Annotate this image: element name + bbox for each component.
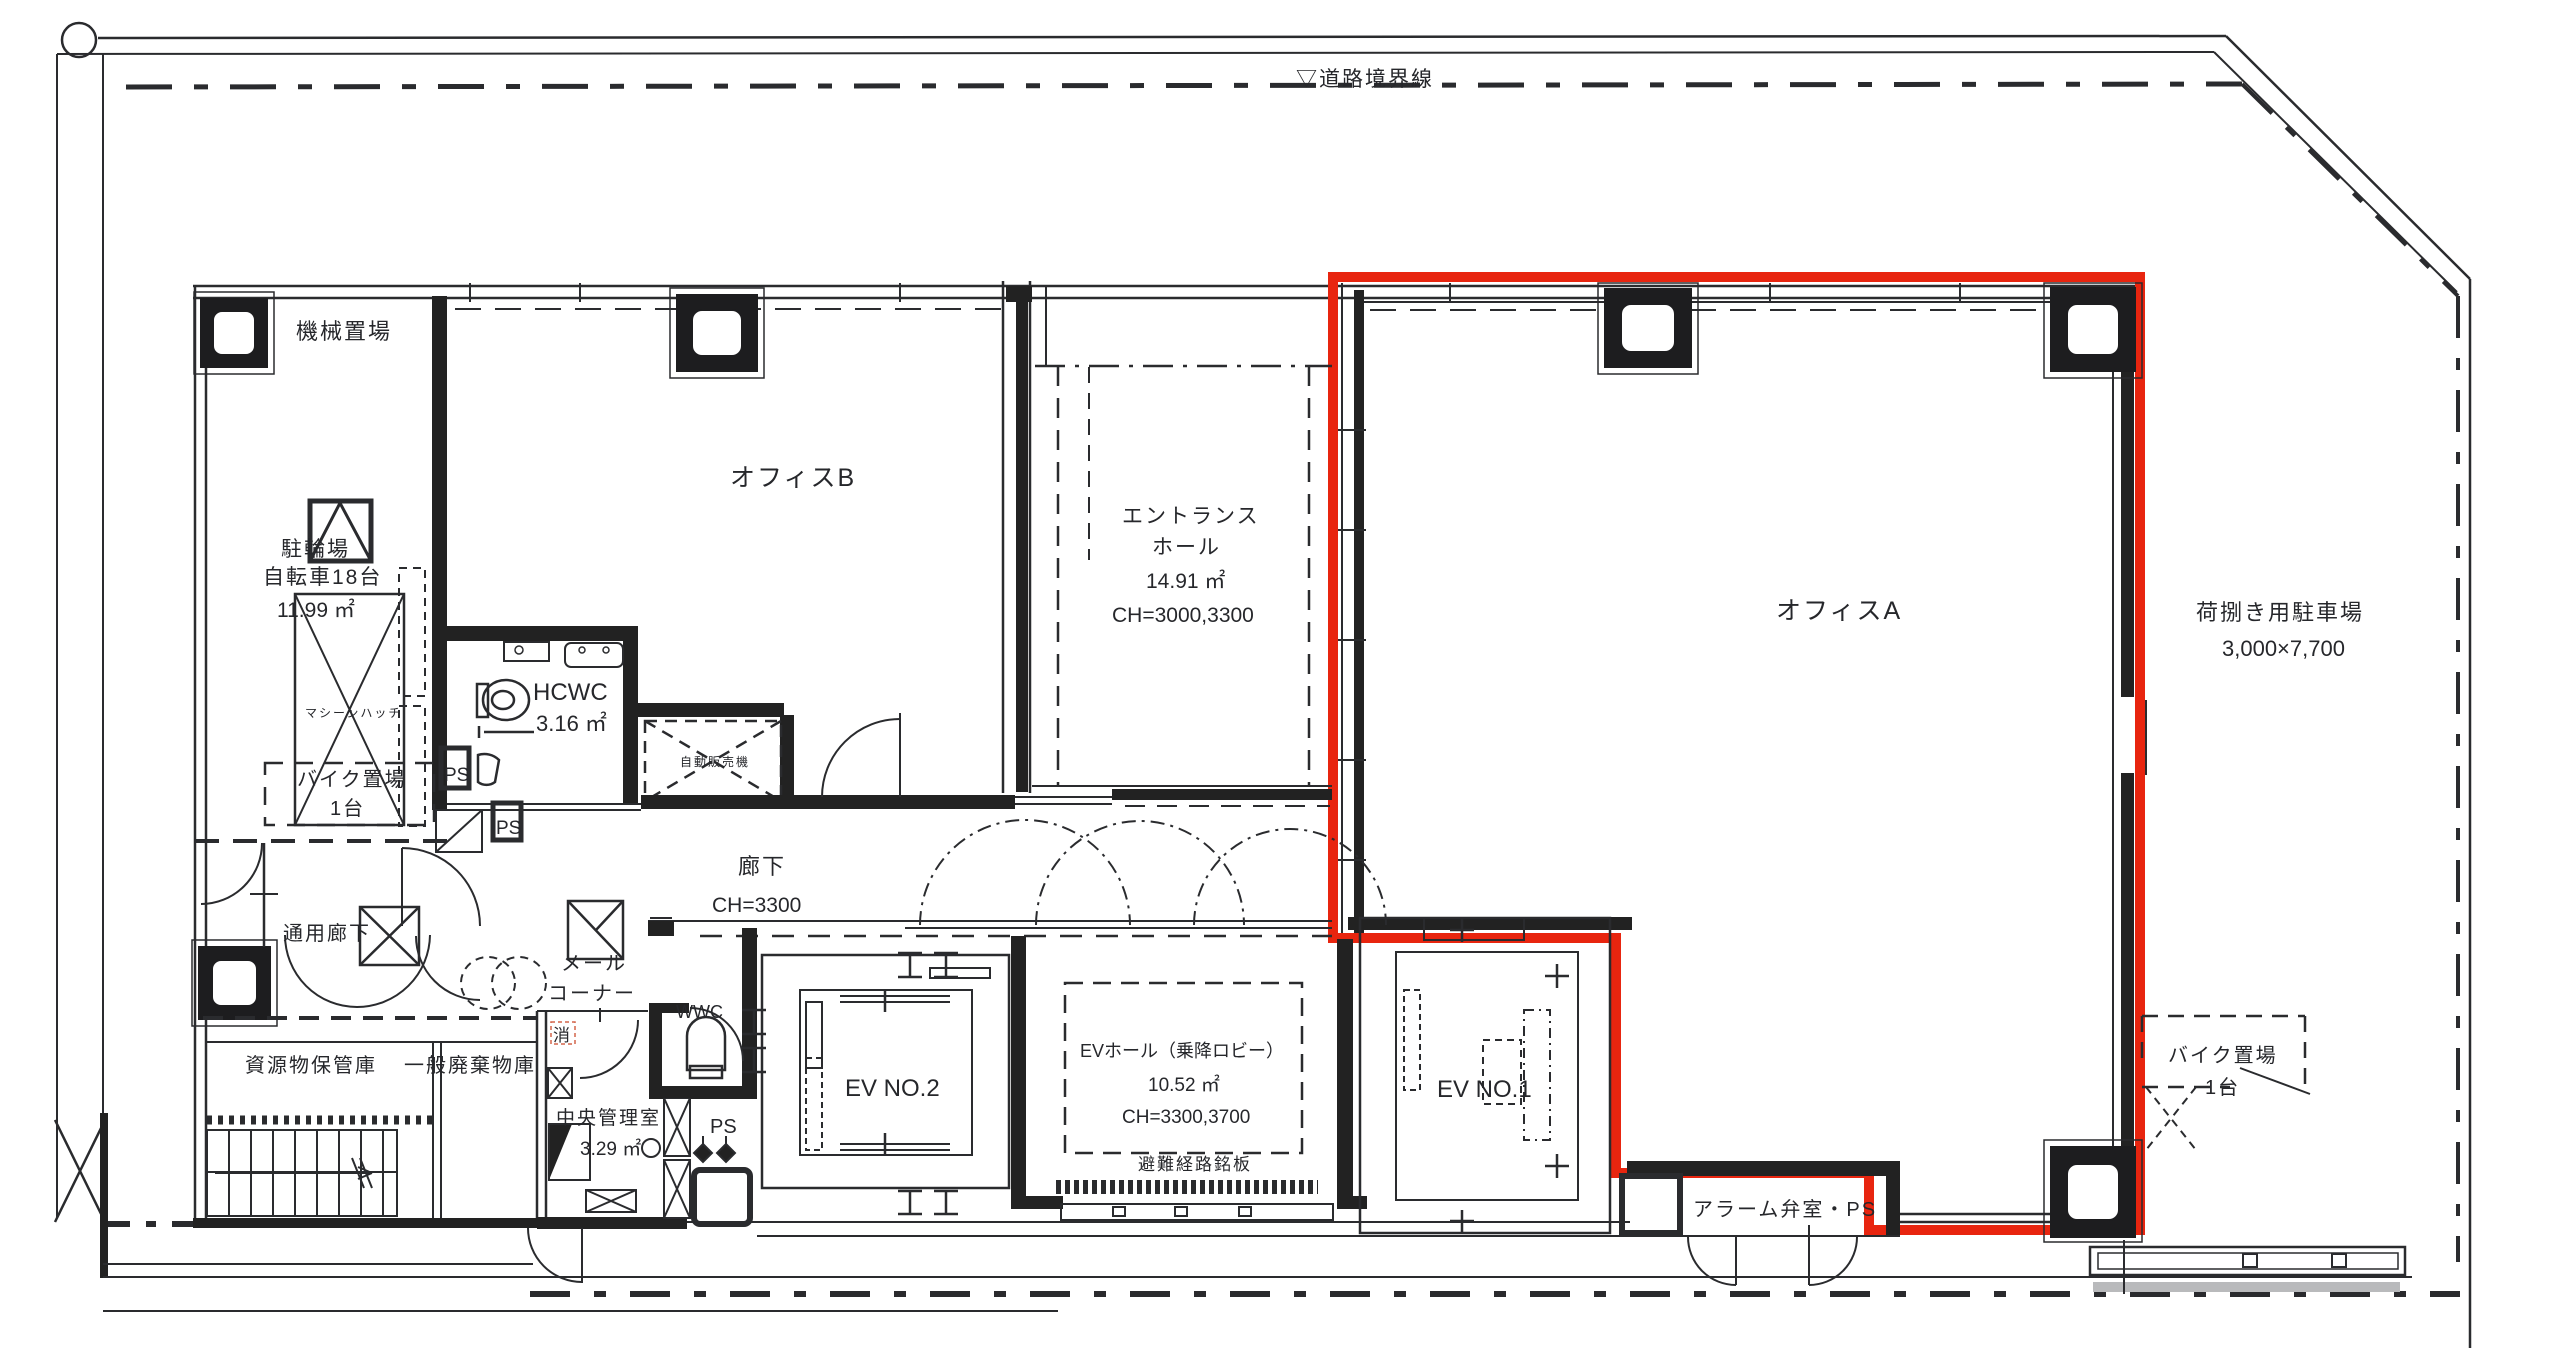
- svg-text:1台: 1台: [330, 797, 365, 820]
- svg-text:一般廃棄物庫: 一般廃棄物庫: [404, 1054, 536, 1077]
- svg-text:3,000×7,700: 3,000×7,700: [2222, 636, 2345, 661]
- svg-text:CH=3000,3300: CH=3000,3300: [1112, 604, 1254, 627]
- svg-text:10.52 ㎡: 10.52 ㎡: [1148, 1073, 1220, 1096]
- svg-text:PS: PS: [496, 818, 521, 839]
- svg-text:コーナー: コーナー: [548, 983, 636, 1005]
- svg-text:消: 消: [553, 1026, 570, 1045]
- svg-text:資源物保管庫: 資源物保管庫: [245, 1054, 377, 1077]
- svg-text:WWC: WWC: [676, 1002, 723, 1022]
- svg-text:通用廊下: 通用廊下: [283, 922, 371, 945]
- svg-text:荷捌き用駐車場: 荷捌き用駐車場: [2196, 600, 2364, 625]
- svg-text:▽道路境界線: ▽道路境界線: [1296, 68, 1434, 91]
- svg-text:CH=3300,3700: CH=3300,3700: [1122, 1107, 1250, 1128]
- svg-text:EV NO.1: EV NO.1: [1437, 1076, 1532, 1103]
- svg-text:1台: 1台: [2205, 1076, 2240, 1099]
- svg-text:メール: メール: [561, 953, 627, 975]
- svg-text:3.29 ㎡: 3.29 ㎡: [580, 1137, 641, 1160]
- svg-text:CH=3300: CH=3300: [712, 894, 801, 917]
- svg-text:PS: PS: [444, 765, 469, 786]
- svg-text:中央管理室: 中央管理室: [556, 1107, 661, 1129]
- svg-text:HCWC: HCWC: [533, 679, 608, 706]
- svg-text:11.99 ㎡: 11.99 ㎡: [277, 598, 355, 622]
- svg-text:廊下: 廊下: [738, 854, 786, 879]
- svg-text:オフィスB: オフィスB: [730, 464, 856, 492]
- svg-text:駐輪場: 駐輪場: [281, 538, 350, 561]
- svg-text:オフィスA: オフィスA: [1776, 597, 1902, 625]
- svg-text:避難経路銘板: 避難経路銘板: [1138, 1155, 1252, 1174]
- svg-text:EVホール（乗降ロビー）: EVホール（乗降ロビー）: [1080, 1041, 1284, 1061]
- svg-text:マシーンハッチ: マシーンハッチ: [305, 706, 402, 720]
- svg-text:3.16 ㎡: 3.16 ㎡: [536, 711, 607, 736]
- svg-text:PS: PS: [710, 1116, 737, 1138]
- svg-text:14.91 ㎡: 14.91 ㎡: [1146, 569, 1225, 593]
- svg-text:エントランス: エントランス: [1122, 505, 1260, 528]
- svg-text:バイク置場: バイク置場: [297, 768, 407, 791]
- svg-text:自転車18台: 自転車18台: [263, 566, 382, 589]
- svg-text:自動販売機: 自動販売機: [680, 754, 750, 769]
- svg-text:EV NO.2: EV NO.2: [845, 1075, 940, 1102]
- svg-text:機械置場: 機械置場: [296, 319, 392, 344]
- svg-text:バイク置場: バイク置場: [2168, 1044, 2278, 1067]
- svg-text:アラーム弁室・PS: アラーム弁室・PS: [1693, 1198, 1877, 1221]
- svg-text:ホール: ホール: [1152, 536, 1221, 559]
